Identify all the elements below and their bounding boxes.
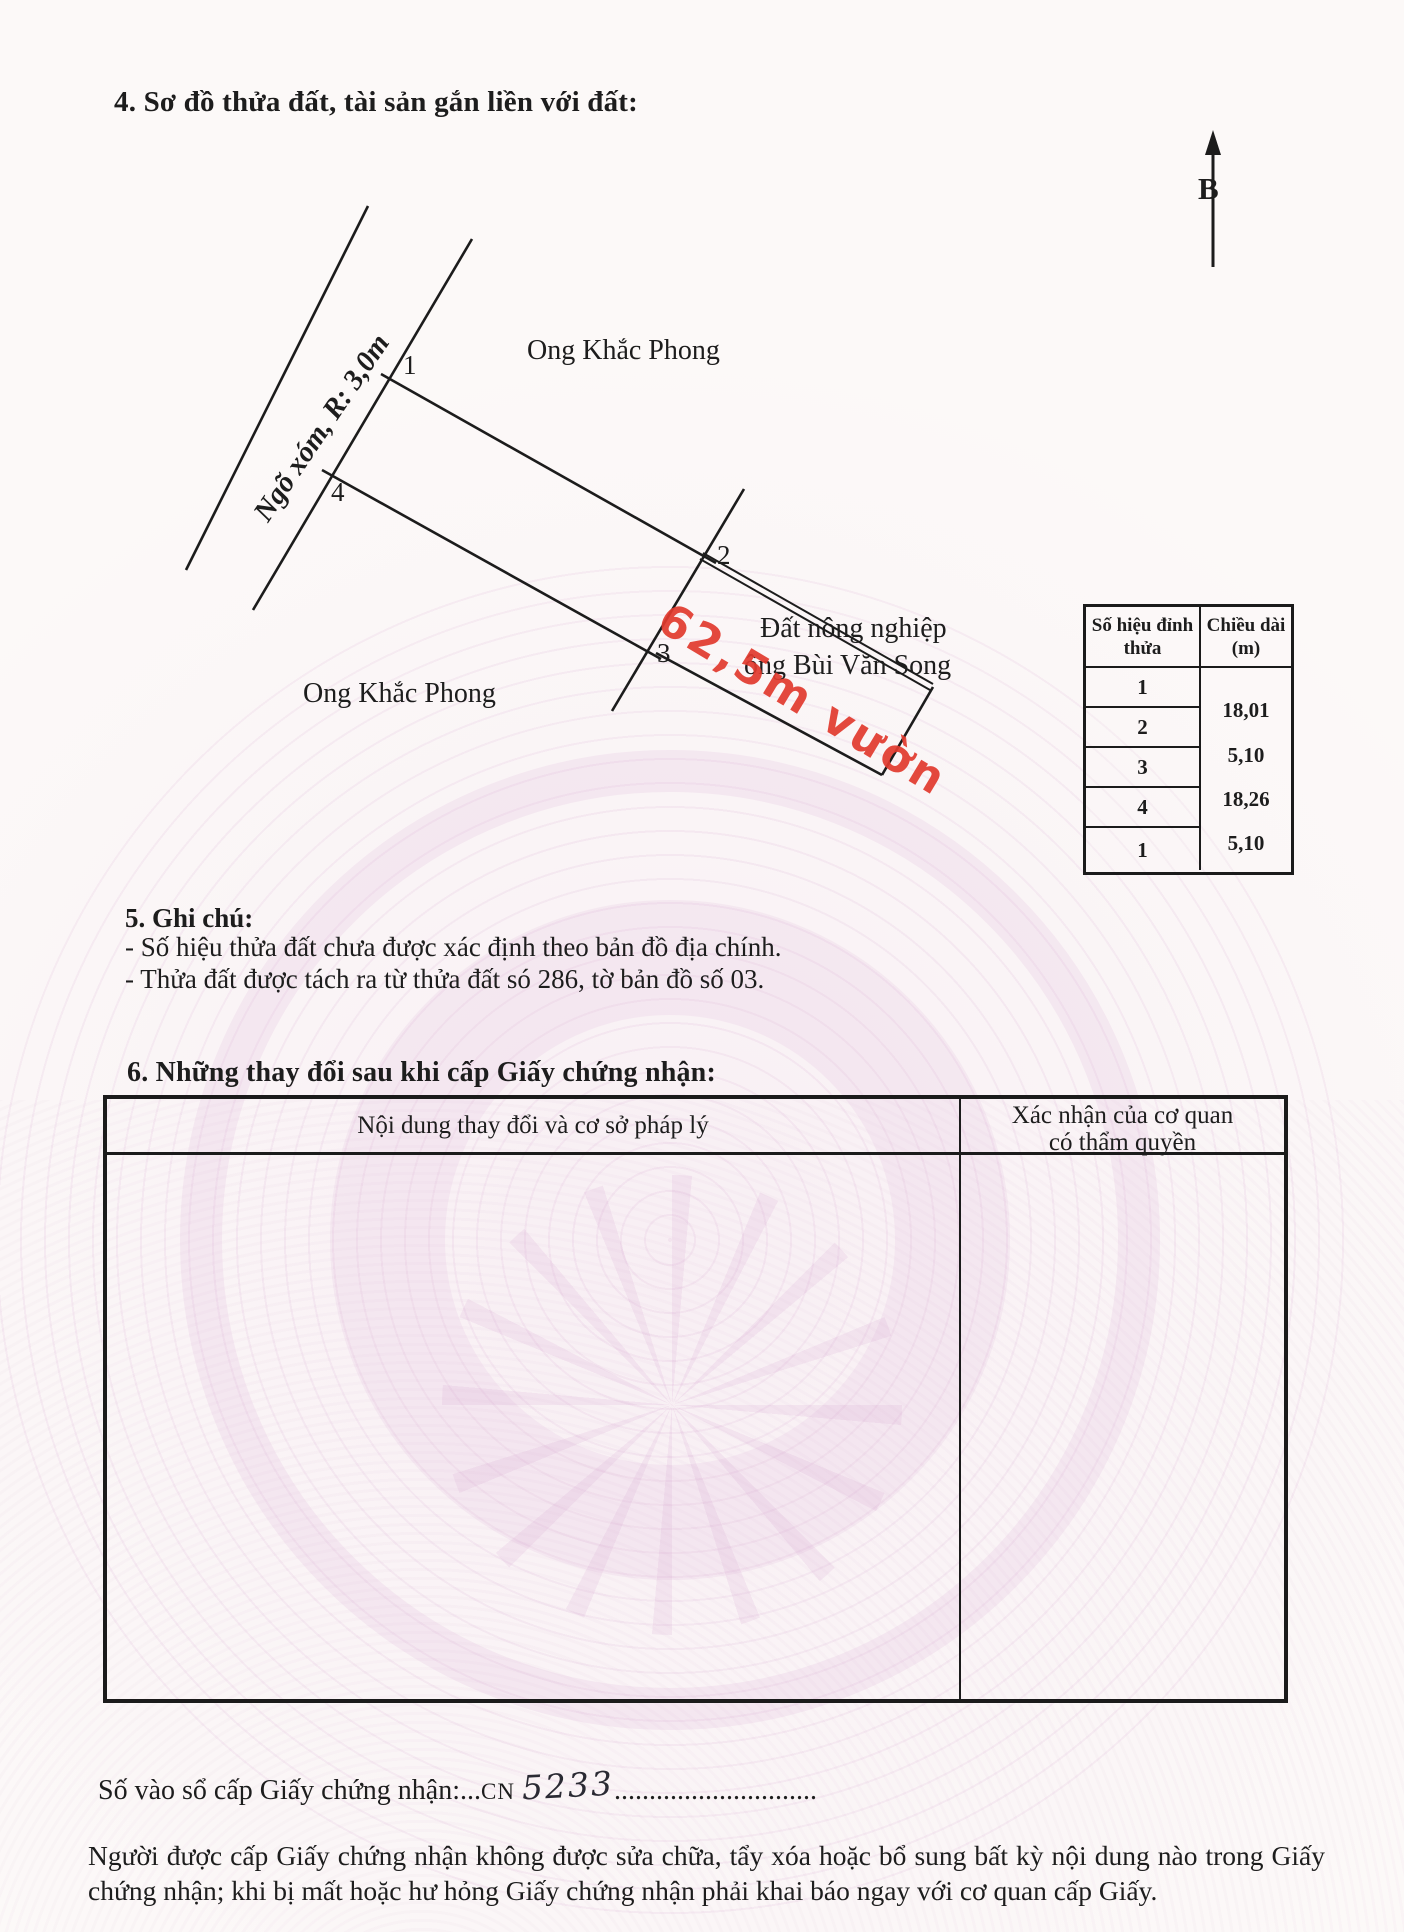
- edge-length-value: 18,01: [1201, 698, 1291, 723]
- register-label: Số vào sổ cấp Giấy chứng nhận:: [98, 1775, 460, 1806]
- vertex-id-cell: 1: [1086, 828, 1199, 872]
- vertex-header-line2: thửa: [1086, 637, 1199, 660]
- north-arrow-head: [1205, 130, 1221, 155]
- changes-content-cell: [107, 1155, 961, 1700]
- section6-title: 6. Những thay đổi sau khi cấp Giấy chứng…: [127, 1057, 716, 1089]
- vertex-id-cell: 1: [1086, 668, 1199, 708]
- confirm-header-line2: có thẩm quyền: [961, 1129, 1284, 1156]
- changes-table-header: Nội dung thay đổi và cơ sở pháp lý Xác n…: [107, 1099, 1284, 1155]
- vertex-table-header-col2: Chiều dài (m): [1201, 607, 1291, 666]
- vertex-id-cell: 4: [1086, 788, 1199, 828]
- register-dots-post: .............................: [614, 1775, 817, 1806]
- length-header-line2: (m): [1201, 637, 1291, 660]
- length-header-line1: Chiều dài: [1201, 614, 1291, 637]
- changes-content-header-text: Nội dung thay đổi và cơ sở pháp lý: [357, 1112, 708, 1140]
- vertex-label-1: 1: [403, 350, 417, 381]
- vertex-id-cell: 2: [1086, 708, 1199, 748]
- changes-confirm-cell: [961, 1155, 1284, 1700]
- changes-content-header: Nội dung thay đổi và cơ sở pháp lý: [107, 1099, 961, 1152]
- vertex-label-2: 2: [717, 540, 731, 571]
- section5-note-1: - Số hiệu thửa đất chưa được xác định th…: [125, 932, 782, 963]
- certificate-warning-paragraph: Người được cấp Giấy chứng nhận không đượ…: [88, 1838, 1325, 1908]
- edge-length-value: 5,10: [1201, 831, 1291, 856]
- register-number-handwritten: 5233: [521, 1764, 615, 1808]
- edge-1-2: [381, 374, 716, 563]
- changes-table-body: [107, 1155, 1284, 1700]
- vertex-id-cell: 3: [1086, 748, 1199, 788]
- edge-4-3: [322, 470, 661, 659]
- changes-confirm-header: Xác nhận của cơ quan có thẩm quyền: [961, 1099, 1284, 1152]
- edge-length-value: 18,26: [1201, 787, 1291, 812]
- register-dots-pre: ...: [460, 1775, 481, 1806]
- road-right-line: [253, 239, 472, 610]
- vertex-table-body: 1 2 3 4 1 18,01 5,10 18,26 5,10: [1086, 668, 1291, 870]
- register-code: CN: [481, 1779, 515, 1804]
- vertex-label-4: 4: [331, 477, 345, 508]
- section5-title: 5. Ghi chú:: [125, 903, 253, 934]
- neighbor-top-label: Ong Khắc Phong: [527, 335, 720, 367]
- vertex-length-table: Số hiệu đỉnh thửa Chiều dài (m) 1 2 3 4 …: [1083, 604, 1294, 875]
- edge-length-value: 5,10: [1201, 743, 1291, 768]
- vertex-table-header-col1: Số hiệu đỉnh thửa: [1086, 607, 1201, 666]
- vertex-id-column: 1 2 3 4 1: [1086, 668, 1201, 870]
- edge-length-column: 18,01 5,10 18,26 5,10: [1201, 668, 1291, 870]
- changes-table: Nội dung thay đổi và cơ sở pháp lý Xác n…: [103, 1095, 1288, 1703]
- neighbor-left-label: Ong Khắc Phong: [303, 678, 496, 710]
- certificate-page: 4. Sơ đồ thửa đất, tài sản gắn liền với …: [0, 0, 1404, 1932]
- register-number-line: Số vào sổ cấp Giấy chứng nhận:...CN 5233…: [98, 1768, 817, 1807]
- vertex-table-header: Số hiệu đỉnh thửa Chiều dài (m): [1086, 607, 1291, 668]
- vertex-header-line1: Số hiệu đỉnh: [1086, 614, 1199, 637]
- section5-note-2: - Thửa đất được tách ra từ thửa đất só 2…: [125, 964, 764, 995]
- confirm-header-line1: Xác nhận của cơ quan: [961, 1102, 1284, 1129]
- neighbor-right-label-line1: Đất nông nghiệp: [760, 613, 947, 645]
- north-label: B: [1198, 171, 1219, 207]
